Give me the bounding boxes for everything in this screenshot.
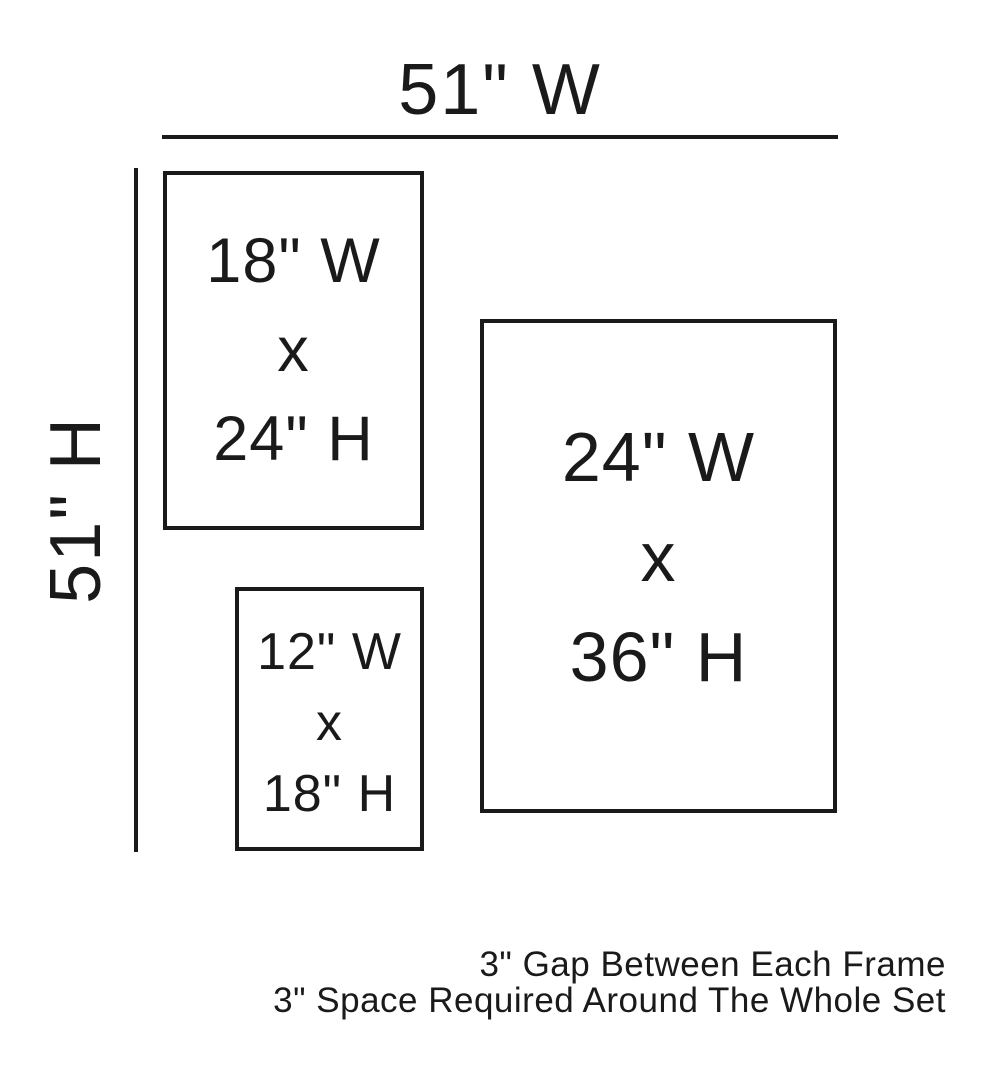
frame-24x36-x-separator: x bbox=[641, 522, 677, 592]
frame-12x18: 12" W x 18" H bbox=[235, 587, 424, 851]
frame-18x24: 18" W x 24" H bbox=[163, 171, 424, 530]
frame-12x18-width-label: 12" W bbox=[257, 626, 402, 678]
frame-18x24-x-separator: x bbox=[277, 319, 310, 382]
total-width-label: 51" W bbox=[162, 54, 838, 126]
frame-24x36: 24" W x 36" H bbox=[480, 319, 837, 813]
note-space-around-set: 3" Space Required Around The Whole Set bbox=[273, 983, 946, 1019]
total-height-label-text: 51" H bbox=[40, 416, 112, 604]
total-width-line bbox=[162, 135, 838, 139]
note-gap-between-frames: 3" Gap Between Each Frame bbox=[273, 947, 946, 983]
frame-18x24-height-label: 24" H bbox=[213, 408, 373, 471]
frame-layout-diagram: 51" W 51" H 18" W x 24" H 12" W x 18" H … bbox=[0, 0, 1000, 1081]
frame-12x18-x-separator: x bbox=[316, 697, 343, 749]
frame-24x36-height-label: 36" H bbox=[570, 622, 748, 692]
frame-18x24-width-label: 18" W bbox=[206, 230, 380, 293]
total-height-label: 51" H bbox=[14, 168, 138, 852]
frame-12x18-height-label: 18" H bbox=[263, 768, 396, 820]
notes: 3" Gap Between Each Frame 3" Space Requi… bbox=[273, 947, 946, 1019]
frame-24x36-width-label: 24" W bbox=[562, 422, 755, 492]
